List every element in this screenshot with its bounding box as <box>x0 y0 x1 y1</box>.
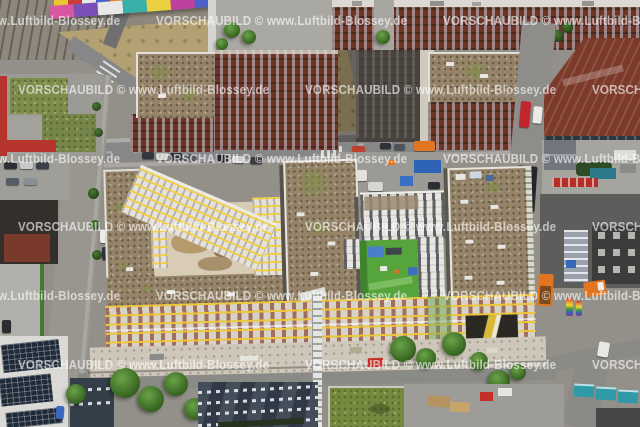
gravel-strip <box>364 195 418 211</box>
striped-renovation-building <box>564 230 588 282</box>
teal-container <box>596 386 617 400</box>
moss-patch <box>137 284 155 292</box>
dormer-row <box>198 396 318 405</box>
rainbow-painted-silo <box>566 298 573 316</box>
white-roof-edge <box>212 50 338 54</box>
debris <box>350 347 362 353</box>
roof-pillar <box>628 232 635 239</box>
graffiti-segment <box>98 1 123 16</box>
rainbow-painted-silo <box>576 301 582 316</box>
rooftop-unit <box>352 1 362 6</box>
roof-hatch <box>498 245 506 249</box>
slab-shadow <box>338 42 358 142</box>
paved-courtyard-north <box>208 0 334 54</box>
parked-car <box>2 320 11 333</box>
courtyard-tree <box>242 30 256 44</box>
roof-pillar <box>628 249 635 256</box>
white-trailer <box>498 388 512 396</box>
blue-car <box>56 406 65 420</box>
debris <box>150 354 164 360</box>
dirt-patch <box>198 256 232 271</box>
red-wall-south <box>0 140 56 152</box>
truck-bed <box>539 286 551 305</box>
rooftop-unit <box>472 2 481 6</box>
moss-patch <box>293 167 334 198</box>
maroon-hall <box>544 38 640 142</box>
construction-material <box>456 174 466 180</box>
roof-pillar <box>598 266 605 273</box>
brick-annex <box>4 234 50 262</box>
aerial-photo: VORSCHAUBILD © www.Luftbild-Blossey.de V… <box>0 0 640 427</box>
roof-hatch <box>460 200 468 204</box>
teal-container <box>574 383 595 397</box>
sedum-green-roof <box>328 386 406 427</box>
street-tree <box>94 128 103 137</box>
moss-roof-building <box>0 74 102 158</box>
tree <box>442 332 466 356</box>
moss-patch <box>307 222 331 237</box>
graffiti-segment <box>146 0 171 12</box>
play-equipment <box>386 248 402 255</box>
roof-pillar <box>613 232 620 239</box>
red-container <box>480 392 493 401</box>
roof-hatch <box>464 276 472 280</box>
moss-shade <box>370 404 390 414</box>
orange-truck <box>537 274 554 307</box>
roof-hatch <box>310 272 318 276</box>
white-u-block-west-stub <box>343 239 360 269</box>
tree <box>164 372 188 396</box>
tree <box>110 368 140 398</box>
machine-cab <box>597 282 604 291</box>
mid-block-gravel-roof <box>283 159 361 307</box>
construction-material <box>486 175 494 181</box>
moss-roof-section <box>10 78 68 114</box>
rooftop-unit <box>582 1 594 6</box>
roof-hatch <box>465 240 473 244</box>
red-container <box>368 358 383 368</box>
white-u-block-east-wing <box>417 236 445 303</box>
dark-flat-building <box>0 200 58 264</box>
white-table <box>380 266 387 271</box>
courtyard-tree <box>376 30 390 44</box>
roof-hatch <box>490 205 498 209</box>
small-gabled-building <box>544 140 576 170</box>
roof-hatch <box>167 290 175 294</box>
debris <box>240 355 258 360</box>
dormer-row <box>198 385 318 394</box>
roof-hatch <box>327 241 335 245</box>
tan-container <box>428 395 451 408</box>
blue-box <box>408 267 417 275</box>
parked-car <box>24 178 37 185</box>
blue-tarp <box>368 246 384 257</box>
roof-hatch <box>297 212 305 216</box>
gravel-roof-office <box>136 52 214 118</box>
roof-pillar <box>598 249 605 256</box>
white-van <box>532 106 542 124</box>
debris <box>486 348 498 353</box>
dark-ground-corner <box>596 408 640 427</box>
brick-office-block <box>212 50 338 150</box>
tree <box>138 386 164 412</box>
roof-hatch <box>227 292 235 296</box>
parked-car <box>36 162 49 169</box>
courtyard-tree <box>216 38 228 50</box>
construction-material <box>469 171 481 178</box>
courtyard-tree <box>562 22 573 33</box>
white-roof-edge <box>208 0 216 54</box>
teal-container <box>618 389 639 403</box>
parking-lot-west <box>0 156 70 200</box>
roof-pillar <box>613 249 620 256</box>
roof-hatch <box>446 62 454 66</box>
roof-hatch <box>158 94 166 98</box>
parked-car <box>20 162 33 169</box>
solar-array <box>1 339 62 373</box>
moss-patch <box>480 181 506 194</box>
pillar-grid-building <box>592 226 640 284</box>
roof-hatch <box>480 74 488 78</box>
container <box>614 150 636 160</box>
courtyard-tree <box>224 22 240 38</box>
graffiti-segment <box>74 2 99 17</box>
container <box>620 164 636 173</box>
roof-ridge <box>544 154 576 156</box>
tree <box>390 336 416 362</box>
roof-hatch <box>497 281 505 285</box>
roof-pillar <box>628 266 635 273</box>
moss-patch <box>178 88 200 102</box>
dormer-row <box>198 407 318 416</box>
fire-truck <box>519 101 531 128</box>
moss-patch <box>146 64 172 80</box>
orange-item <box>394 270 399 274</box>
solar-array <box>0 373 53 406</box>
roof-pillar <box>613 266 620 273</box>
northeast-yard <box>542 140 640 194</box>
tree <box>470 352 488 370</box>
blue-tarp <box>566 260 576 268</box>
parked-car <box>6 178 19 185</box>
roof-hatch <box>126 267 133 271</box>
roof-pillar <box>598 232 605 239</box>
tan-container <box>450 401 471 412</box>
east-block-gravel-roof <box>447 166 533 304</box>
solar-array <box>5 407 62 427</box>
skylight-band <box>562 65 624 87</box>
red-banner-wall <box>552 178 598 187</box>
parked-car <box>4 162 17 169</box>
tree <box>66 384 86 404</box>
green-courtyard-playground <box>359 239 419 299</box>
gravel-roof-office-east <box>428 52 522 106</box>
graffiti-segment <box>50 4 75 19</box>
white-u-block-north-wing <box>360 190 445 240</box>
orange-machine <box>583 280 607 298</box>
tree <box>416 348 436 368</box>
paved-yard-south <box>404 384 564 427</box>
graffiti-segment <box>122 0 147 14</box>
tree <box>510 364 526 380</box>
rooftop-unit <box>430 1 444 6</box>
street-tree <box>92 102 101 111</box>
brick-office-block <box>130 114 214 152</box>
turf-path <box>368 276 413 290</box>
